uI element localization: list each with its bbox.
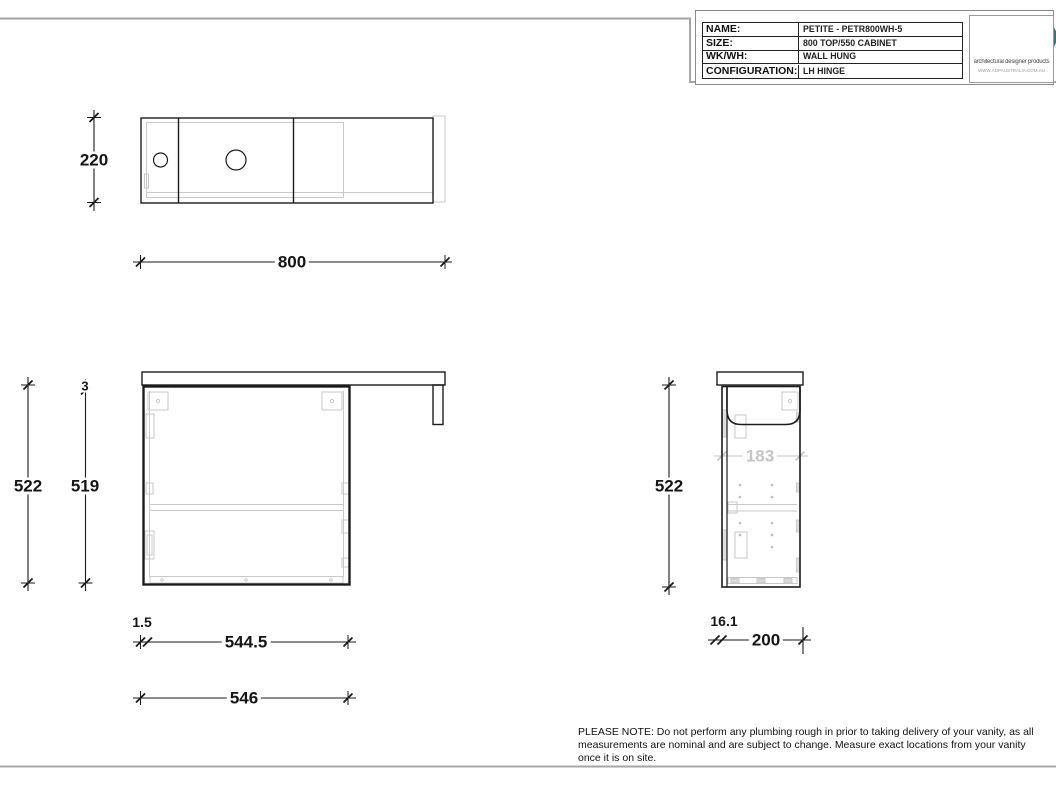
drawing-linework [0, 0, 1056, 792]
plumbing-note: PLEASE NOTE: Do not perform any plumbing… [578, 726, 1042, 766]
dim-front-side-offset: 1.5 [129, 615, 154, 629]
drawing-sheet: NAME: PETITE - PETR800WH-5 SIZE: 800 TOP… [0, 0, 1056, 792]
table-row: WK/WH: WALL HUNG [703, 51, 962, 65]
dim-side-internal-depth: 183 [743, 448, 777, 465]
side-view [714, 372, 808, 587]
field-size-label: SIZE: [703, 37, 799, 50]
dim-side-height: 522 [652, 478, 686, 495]
dim-top-width: 800 [275, 254, 309, 271]
table-row: CONFIGURATION: LH HINGE [703, 64, 962, 78]
field-name-value: PETITE - PETR800WH-5 [799, 23, 962, 36]
logo-tagline: architectural designer products [970, 59, 1053, 65]
field-name-label: NAME: [703, 23, 799, 36]
title-block: NAME: PETITE - PETR800WH-5 SIZE: 800 TOP… [695, 10, 1054, 85]
table-row: SIZE: 800 TOP/550 CABINET [703, 37, 962, 51]
title-block-table: NAME: PETITE - PETR800WH-5 SIZE: 800 TOP… [702, 22, 963, 79]
dim-front-carcass-width: 546 [227, 690, 261, 707]
adp-logo: architectural designer products WWW.ADPA… [969, 15, 1054, 83]
top-view [141, 116, 445, 203]
field-wkwh-value: WALL HUNG [799, 50, 962, 63]
dim-side-depth: 200 [749, 632, 783, 649]
dim-top-depth: 220 [77, 152, 111, 169]
table-row: NAME: PETITE - PETR800WH-5 [703, 23, 962, 37]
shelf-pin-holes [739, 484, 774, 549]
dim-side-back-offset: 16.1 [707, 614, 740, 628]
field-wkwh-label: WK/WH: [703, 50, 799, 63]
logo-website: WWW.ADPAUSTRALIA.COM.AU [970, 68, 1053, 73]
front-view [142, 372, 445, 585]
dim-front-overall-height: 522 [11, 478, 45, 495]
field-configuration-label: CONFIGURATION: [703, 65, 799, 78]
dim-front-carcass-height: 519 [68, 478, 102, 495]
dim-front-internal-width: 544.5 [222, 634, 271, 651]
field-size-value: 800 TOP/550 CABINET [799, 37, 962, 50]
field-configuration-value: LH HINGE [799, 65, 962, 78]
dim-front-top-gap: 3 [78, 380, 91, 393]
